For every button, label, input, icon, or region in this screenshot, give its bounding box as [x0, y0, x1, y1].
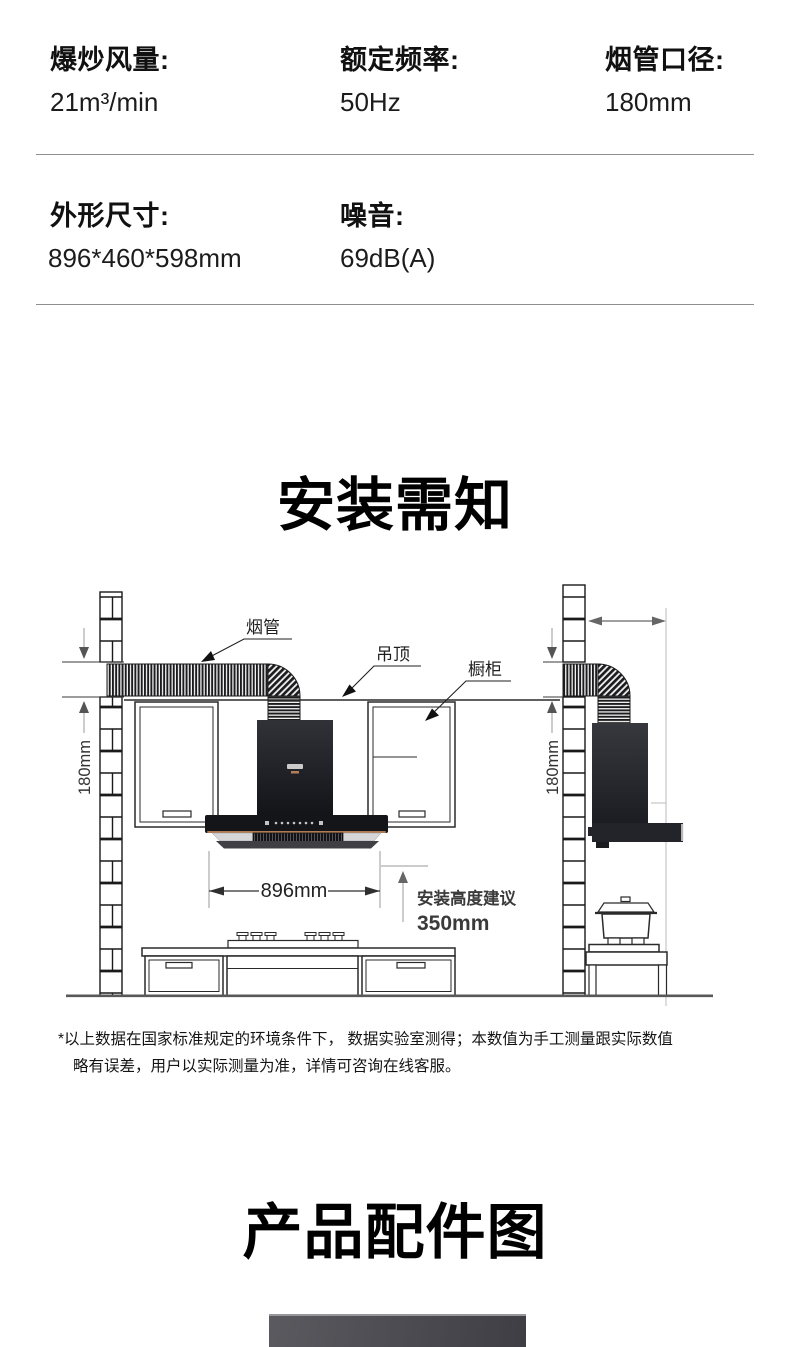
- wall-cabinet-left: [135, 702, 218, 827]
- accessories-section-title: 产品配件图: [0, 1184, 790, 1271]
- duct-label: 烟管: [201, 618, 292, 662]
- spec-value-dimensions: 896*460*598mm: [48, 243, 242, 274]
- svg-text:896mm: 896mm: [261, 880, 328, 902]
- svg-text:橱柜: 橱柜: [468, 660, 502, 679]
- spec-value-stir-fry-airflow: 21m³/min: [50, 87, 158, 118]
- spec-label-dimensions: 外形尺寸:: [50, 194, 170, 233]
- counter-front: [142, 933, 455, 996]
- stove-burner-knobs: [237, 933, 344, 941]
- svg-text:安装高度建议: 安装高度建议: [417, 888, 517, 908]
- range-hood-side: [588, 723, 683, 848]
- wall-cabinet-right: [368, 702, 455, 827]
- dim-wall-to-front: [588, 617, 666, 626]
- ceiling-label: 吊顶: [342, 645, 421, 697]
- right-wall-gap-ticks: [543, 662, 563, 697]
- bottom-product-image: [269, 1314, 526, 1347]
- dim-896mm: 896mm: [209, 851, 380, 908]
- left-wall-bricks: [100, 592, 122, 996]
- countertop: [142, 948, 455, 956]
- spec-label-duct-diameter: 烟管口径:: [605, 38, 725, 77]
- cooking-pot: [595, 897, 657, 945]
- dim-180mm-right: 180mm: [544, 628, 562, 795]
- range-hood-front: [205, 720, 388, 849]
- stove-side: [586, 945, 667, 996]
- spec-value-noise: 69dB(A): [340, 243, 435, 274]
- product-detail-page: 爆炒风量: 额定频率: 烟管口径: 21m³/min 50Hz 180mm 外形…: [0, 0, 790, 1347]
- footnote-line-2: 略有误差，用户以实际测量为准，详情可咨询在线客服。: [58, 1053, 758, 1080]
- footnote: *以上数据在国家标准规定的环境条件下， 数据实验室测得；本数值为手工测量跟实际数…: [58, 1026, 758, 1080]
- installation-diagram: 180mm: [0, 575, 790, 1015]
- vent-grille: [253, 833, 343, 842]
- spec-label-noise: 噪音:: [340, 194, 405, 233]
- dim-180mm-left: 180mm: [76, 628, 94, 795]
- spec-label-rated-frequency: 额定频率:: [340, 38, 460, 77]
- install-section-title: 安装需知: [0, 458, 790, 542]
- footnote-line-1: *以上数据在国家标准规定的环境条件下， 数据实验室测得；本数值为手工测量跟实际数…: [58, 1026, 758, 1053]
- gas-stove-front: [228, 941, 358, 949]
- spec-divider-bottom: [36, 304, 754, 305]
- spec-divider-top: [36, 154, 754, 155]
- spec-value-duct-diameter: 180mm: [605, 87, 692, 118]
- install-height-note: 安装高度建议 350mm: [381, 866, 517, 935]
- spec-label-stir-fry-airflow: 爆炒风量:: [50, 38, 170, 77]
- svg-text:180mm: 180mm: [544, 740, 562, 795]
- svg-text:烟管: 烟管: [246, 618, 280, 637]
- svg-text:180mm: 180mm: [76, 740, 94, 795]
- svg-text:吊顶: 吊顶: [376, 645, 410, 664]
- brand-logo: [287, 764, 303, 769]
- spec-value-rated-frequency: 50Hz: [340, 87, 401, 118]
- svg-text:350mm: 350mm: [417, 912, 489, 935]
- right-wall-bricks: [563, 585, 585, 996]
